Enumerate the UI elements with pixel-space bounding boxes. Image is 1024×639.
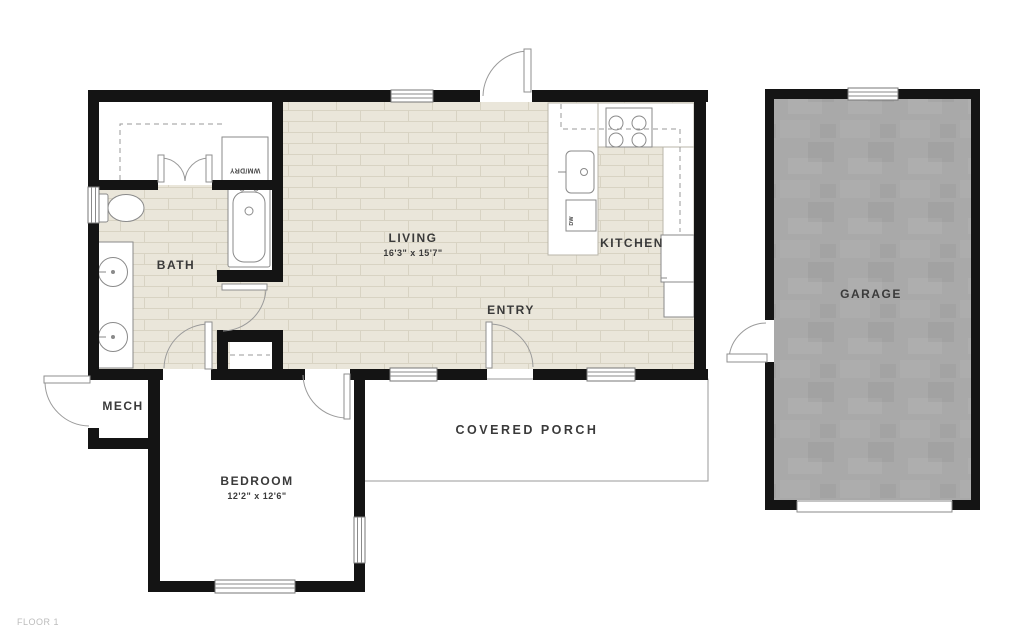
window-kitchen-bottom xyxy=(587,368,635,381)
window-living-bottom-left xyxy=(390,368,437,381)
double-door-laundry xyxy=(158,155,212,182)
room-label-covered-porch: COVERED PORCH xyxy=(456,423,599,437)
floor-tag: FLOOR 1 xyxy=(17,617,59,627)
bathtub xyxy=(228,187,270,267)
window-garage-top xyxy=(848,88,898,100)
room-label-bath: BATH xyxy=(157,258,195,272)
kitchen-pantry-cabinet xyxy=(664,282,694,317)
bathroom-vanity xyxy=(95,242,133,368)
range-stove xyxy=(606,108,652,147)
washer-dryer-unit xyxy=(222,137,268,182)
garage-door-panel xyxy=(797,501,952,512)
door-mech xyxy=(44,376,90,426)
door-bedroom xyxy=(303,374,350,419)
door-front xyxy=(483,49,531,96)
room-label-mech: MECH xyxy=(102,399,143,413)
dishwasher-label: DW xyxy=(569,216,575,225)
refrigerator xyxy=(661,235,694,282)
room-dims-living: 16'3" x 15'7" xyxy=(383,248,442,258)
room-label-entry: ENTRY xyxy=(487,303,535,317)
floor-plan-drawing xyxy=(0,0,1024,639)
window-bath-left xyxy=(88,187,99,223)
window-bedroom-bottom xyxy=(215,580,295,593)
room-dims-bedroom: 12'2" x 12'6" xyxy=(227,491,286,501)
room-label-garage: GARAGE xyxy=(840,287,902,301)
room-label-bedroom: BEDROOM xyxy=(220,474,293,488)
washer-dryer-label: WM/DRY xyxy=(230,167,261,174)
floor-plan: LIVING 16'3" x 15'7" KITCHEN ENTRY BATH … xyxy=(0,0,1024,639)
toilet xyxy=(95,194,144,222)
window-living-top xyxy=(391,90,433,102)
door-garage-side xyxy=(727,323,767,362)
room-label-kitchen: KITCHEN xyxy=(600,236,664,250)
kitchen-side-counter xyxy=(663,147,694,235)
window-bedroom-right xyxy=(354,517,365,563)
room-label-living: LIVING xyxy=(388,231,437,245)
